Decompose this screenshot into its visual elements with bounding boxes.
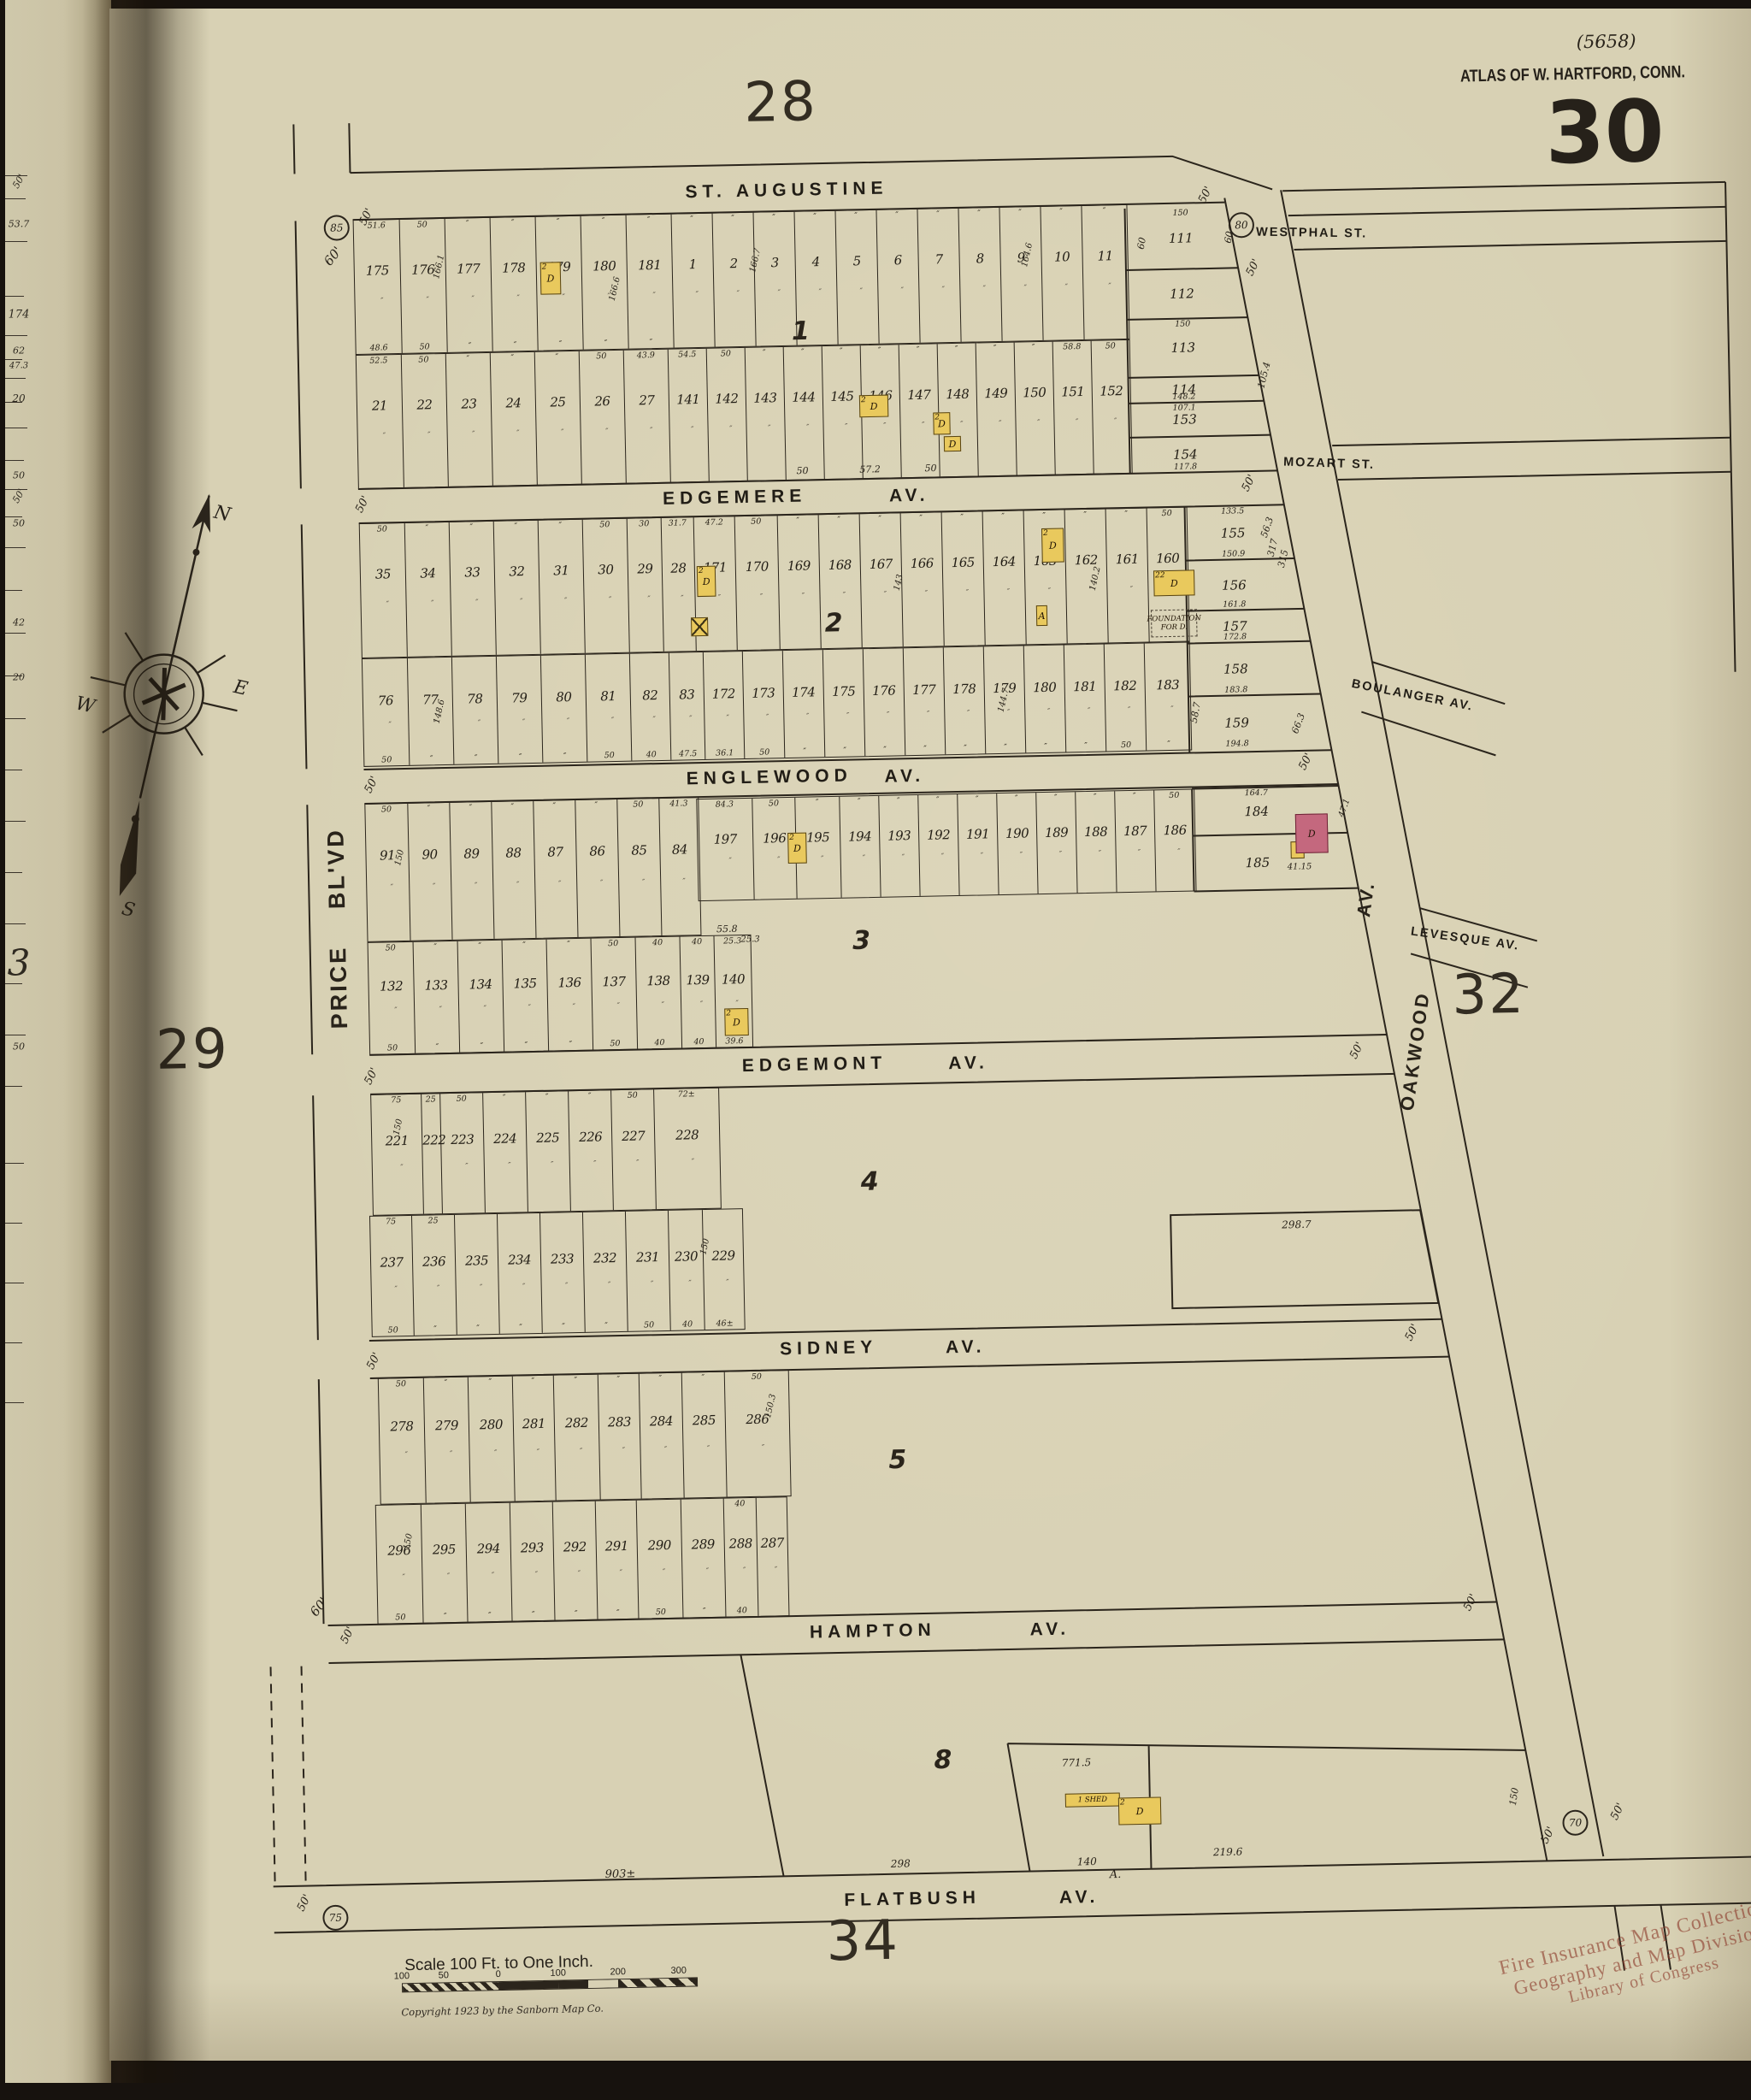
- lot-parcel: 193″″: [878, 795, 919, 897]
- lot-parcel: 78″″: [451, 657, 498, 764]
- building-storey-count: 2: [699, 567, 704, 575]
- lot-dimension: ″: [549, 1040, 593, 1050]
- map-annotation: 771.5: [1062, 1756, 1092, 1769]
- map-annotation: 50': [1244, 257, 1263, 279]
- lot-dimension: ″: [494, 522, 538, 532]
- lot-parcel: 79″″: [496, 656, 542, 764]
- lot-dimension: ″: [999, 208, 1040, 218]
- lot-dimension: ″: [905, 744, 945, 754]
- ditto-mark: ″: [651, 1280, 654, 1289]
- lot-dimension: ″: [627, 215, 671, 226]
- lot-parcel: 88″″: [491, 801, 535, 939]
- lot-number: 90: [409, 846, 450, 863]
- ditto-mark: ″: [400, 1164, 404, 1172]
- block-number: 5: [888, 1445, 907, 1475]
- ditto-mark: ″: [1047, 707, 1051, 716]
- lot-dimension: 40: [632, 750, 670, 760]
- lot-parcel: 294″″: [465, 1503, 512, 1622]
- lot-dimension: 50: [365, 805, 407, 815]
- building-storey-count: 2: [789, 834, 794, 842]
- ditto-mark: ″: [450, 1450, 453, 1459]
- lot-parcel: 112: [1126, 268, 1238, 320]
- lot-number: 151: [1054, 383, 1092, 399]
- lot-dimension: ″: [483, 1093, 525, 1103]
- map-annotation: 50': [353, 494, 372, 516]
- lot-dimension: 40: [681, 937, 714, 947]
- lot-dimension: 50: [378, 1613, 422, 1623]
- lot-dimension: 54.5: [669, 350, 706, 360]
- ditto-mark: ″: [593, 1160, 597, 1169]
- lot-number: 113: [1170, 339, 1195, 356]
- map-annotation: 55.8: [716, 923, 738, 935]
- lot-number: 296: [377, 1543, 422, 1559]
- lot-dimension: ″: [543, 1322, 585, 1332]
- building-storey-count: 2: [1120, 1798, 1125, 1807]
- lot-number: 294: [467, 1541, 510, 1557]
- scale-tick-label: 100: [394, 1971, 410, 1981]
- lot-parcel: 149″″: [976, 343, 1017, 476]
- lot-dimension: 50: [402, 342, 446, 352]
- lot-dimension: 50: [364, 755, 409, 765]
- lot-parcel: 8″″: [958, 208, 1001, 342]
- lot-number: 26: [581, 392, 624, 409]
- lot-parcel: 18650″: [1153, 789, 1195, 891]
- lot-number: 132: [368, 977, 413, 994]
- street-suffix: AV.: [948, 1053, 988, 1074]
- lot-number: 160: [1148, 550, 1188, 566]
- lot-dimension: 50: [1092, 341, 1129, 351]
- map-annotation: 60: [1135, 236, 1148, 250]
- street-name: ENGLEWOOD: [687, 765, 852, 789]
- foundation-label: FOR D.: [1161, 623, 1188, 633]
- lot-number: 176: [864, 682, 904, 699]
- ditto-mark: ″: [516, 429, 520, 438]
- ditto-mark: ″: [726, 1279, 729, 1288]
- lot-dimension: ″: [918, 795, 957, 805]
- street-suffix: AV.: [889, 486, 929, 507]
- lot-dimension: 50: [745, 747, 784, 758]
- lot-row: 19784.3″19650″195″″194″″193″″192″″191″″1…: [696, 788, 1196, 901]
- circled-reference: 70: [1562, 1809, 1589, 1836]
- street-name: MOZART ST.: [1283, 455, 1375, 471]
- ditto-mark: ″: [564, 598, 568, 606]
- map-annotation: 50': [1539, 1825, 1558, 1846]
- map-annotation: 298: [891, 1857, 911, 1869]
- ditto-mark: ″: [846, 711, 850, 720]
- ditto-mark: ″: [642, 878, 646, 887]
- lot-dimension: 50: [735, 516, 777, 527]
- lot-dimension: 84.3: [697, 799, 752, 810]
- ditto-mark: ″: [883, 422, 887, 430]
- lot-dimension: 50: [628, 1320, 670, 1330]
- map-annotation: 50: [796, 465, 808, 476]
- lot-parcel: 24″″: [490, 352, 537, 486]
- ditto-mark: ″: [433, 882, 436, 891]
- lot-parcel: 113150: [1127, 317, 1239, 378]
- lot-number: 181: [1065, 679, 1105, 695]
- lot-number: 183: [1146, 677, 1190, 693]
- lot-number: 175: [355, 262, 400, 279]
- scale-bar-segment: [558, 1979, 618, 1988]
- lot-number: 34: [406, 565, 450, 581]
- lot-dimension: 150: [1127, 318, 1238, 330]
- lot-parcel: 1″″: [671, 214, 715, 348]
- lot-dimension: 172.8: [1187, 631, 1282, 642]
- lot-parcel: 169″″: [777, 515, 821, 649]
- ditto-mark: ″: [941, 853, 945, 862]
- lot-number: 172: [705, 686, 743, 702]
- lot-dimension: ″: [526, 1092, 568, 1102]
- lot-dimension: ″: [983, 511, 1023, 522]
- lot-parcel: 17551.648.6″: [354, 220, 402, 354]
- lot-dimension: 50: [725, 1371, 788, 1382]
- lot-number: 33: [451, 564, 494, 581]
- building-storey-count: 2: [1043, 529, 1048, 538]
- lot-number: 228: [655, 1126, 719, 1143]
- lot-dimension: 50: [580, 351, 623, 362]
- lot-dimension: 50: [440, 1094, 482, 1104]
- building-type-label: D: [1170, 577, 1178, 588]
- scale-bar-segment: [618, 1978, 697, 1987]
- lot-parcel: 9″″: [999, 207, 1042, 341]
- lot-number: 23: [447, 395, 491, 411]
- ditto-mark: ″: [652, 716, 656, 724]
- building-footprint: [691, 617, 708, 636]
- lot-row: 17551.648.6″1765050″177″″″178″″″179″″″18…: [353, 204, 1130, 355]
- lot-number: 1: [673, 257, 713, 273]
- lot-dimension: 50: [592, 939, 635, 949]
- ditto-mark: ″: [901, 287, 905, 296]
- lot-dimension: ″: [469, 1377, 512, 1388]
- lot-number: 174: [784, 684, 823, 700]
- lot-number: 139: [681, 971, 714, 988]
- ditto-mark: ″: [1048, 587, 1052, 596]
- lot-dimension: ″: [785, 746, 824, 757]
- lot-number: 88: [492, 845, 534, 861]
- map-annotation: 60': [321, 244, 345, 268]
- lot-number: 4: [796, 254, 836, 270]
- building-footprint: D2: [697, 566, 716, 597]
- scale-tick-label: 100: [550, 1967, 566, 1978]
- lot-number: 234: [498, 1252, 540, 1268]
- map-annotation: 50': [295, 1892, 314, 1914]
- lot-parcel: 291″″: [595, 1501, 639, 1619]
- lot-parcel: 29050″: [636, 1500, 683, 1619]
- lot-dimension: ″: [860, 514, 900, 524]
- lot-dimension: 31.7: [662, 518, 693, 528]
- ditto-mark: ″: [520, 599, 523, 607]
- lot-dimension: 50: [402, 355, 445, 365]
- lot-dimension: ″: [454, 753, 498, 764]
- lot-number: 141: [669, 391, 707, 407]
- street-suffix: AV.: [884, 766, 924, 787]
- lot-parcel: 233″″: [539, 1212, 585, 1333]
- map-annotation: 50': [1347, 1040, 1366, 1061]
- lot-number: 137: [592, 973, 635, 989]
- lot-parcel: 3050″: [582, 519, 629, 653]
- lot-dimension: 46±: [705, 1318, 744, 1329]
- lot-dimension: ″: [543, 752, 587, 762]
- ditto-mark: ″: [1128, 705, 1131, 714]
- lot-dimension: ″: [491, 353, 534, 363]
- lot-dimension: ″: [917, 209, 958, 220]
- building-type-label: D: [948, 438, 956, 449]
- lot-parcel: 287″: [756, 1497, 789, 1616]
- lot-dimension: ″: [457, 1324, 499, 1334]
- lot-parcel: 2930″: [627, 518, 663, 652]
- lot-parcel: 18250″: [1104, 644, 1146, 752]
- lot-dimension: ″: [500, 1323, 542, 1333]
- lot-parcel: 177″″″: [445, 218, 492, 352]
- lot-number: 180: [582, 258, 627, 274]
- lot-dimension: 50: [379, 1379, 423, 1389]
- lot-parcel: 143″″: [745, 347, 786, 481]
- lot-parcel: 6″″: [875, 209, 919, 344]
- lot-parcel: 281″″: [512, 1376, 556, 1501]
- lot-number: 281: [514, 1415, 554, 1431]
- lot-number: 225: [527, 1130, 569, 1146]
- lot-parcel: 175″″: [822, 649, 864, 757]
- lot-dimension: ″: [861, 345, 899, 356]
- lot-number: 10: [1041, 249, 1082, 265]
- map-annotation: 50': [1608, 1801, 1627, 1822]
- map-annotation: 50': [364, 1350, 383, 1371]
- lot-dimension: ″: [946, 743, 985, 753]
- lot-parcel: 2743.9″: [623, 350, 670, 483]
- lot-dimension: ″: [491, 218, 535, 228]
- ditto-mark: ″: [1065, 284, 1069, 292]
- lot-parcel: 5″″: [834, 210, 878, 345]
- building-type-label: 1 SHED: [1078, 1796, 1108, 1805]
- lot-dimension: ″: [408, 804, 449, 814]
- lot-number: 8: [959, 251, 999, 267]
- lot-dimension: ″: [784, 347, 822, 357]
- ditto-mark: ″: [578, 1570, 581, 1578]
- lot-dimension: ″: [754, 213, 794, 223]
- lot-parcel: 180″″: [1023, 645, 1065, 752]
- lot-number: 289: [682, 1537, 724, 1553]
- ditto-mark: ″: [692, 1158, 695, 1166]
- lot-number: 185: [1245, 854, 1270, 870]
- lot-parcel: 232″″: [582, 1212, 628, 1332]
- ditto-mark: ″: [484, 1006, 487, 1014]
- lot-dimension: ″: [899, 345, 937, 355]
- map-annotation: 903±: [604, 1867, 635, 1881]
- lot-number: 236: [413, 1254, 455, 1270]
- lot-number: 83: [670, 687, 704, 703]
- lot-number: 135: [503, 975, 546, 991]
- ditto-mark: ″: [516, 881, 520, 889]
- ditto-mark: ″: [636, 1159, 640, 1168]
- lot-dimension: ″: [713, 214, 753, 224]
- lot-parcel: 284″″: [639, 1373, 684, 1499]
- lot-parcel: 17050″: [734, 516, 780, 650]
- lot-number: 152: [1093, 382, 1130, 398]
- ditto-mark: ″: [662, 1001, 665, 1010]
- lot-dimension: 39.6: [716, 1036, 752, 1047]
- ditto-mark: ″: [806, 712, 810, 721]
- lot-dimension: 47.2: [694, 517, 734, 528]
- lot-number: 76: [363, 693, 408, 709]
- lot-parcel: 11″″: [1081, 205, 1129, 339]
- lot-parcel: 148″″: [937, 343, 978, 476]
- lot-number: 189: [1037, 824, 1076, 841]
- lot-parcel: 154117.8: [1129, 435, 1241, 474]
- ditto-mark: ″: [775, 1566, 778, 1574]
- lot-row: 9150″90″″89″″88″″87″″86″″8550″8441.3″: [364, 797, 701, 942]
- building-type-label: D: [793, 842, 801, 853]
- lot-number: 85: [618, 842, 659, 858]
- lot-parcel: 114148.2: [1128, 375, 1240, 404]
- lot-number: 81: [587, 688, 630, 705]
- lot-dimension: ″: [575, 800, 616, 811]
- block-number: 3: [852, 926, 871, 956]
- lot-dimension: ″: [598, 1375, 639, 1385]
- map-annotation: 50': [1240, 473, 1259, 494]
- ditto-mark: ″: [650, 427, 653, 435]
- building-footprint: 1 SHED: [1065, 1792, 1120, 1807]
- lot-dimension: ″: [1036, 793, 1075, 803]
- lot-dimension: ″: [423, 1612, 467, 1622]
- lot-dimension: 25: [422, 1094, 439, 1104]
- lot-dimension: ″: [825, 746, 864, 756]
- ditto-mark: ″: [718, 594, 722, 603]
- lot-number: 287: [758, 1535, 787, 1551]
- lot-number: 133: [414, 976, 457, 993]
- map-annotation: AV.: [1353, 880, 1379, 918]
- lot-number: 25: [536, 393, 580, 410]
- lot-parcel: 10″″: [1040, 206, 1083, 340]
- lot-number: 153: [1172, 411, 1197, 428]
- lot-parcel: 15158.8″: [1052, 341, 1094, 475]
- lot-dimension: ″: [468, 1611, 511, 1621]
- lot-parcel: 181″″: [1064, 645, 1105, 752]
- map-annotation: A.: [1110, 1868, 1122, 1881]
- ditto-mark: ″: [777, 857, 781, 865]
- lot-dimension: ″: [498, 752, 542, 763]
- lot-dimension: ″: [503, 941, 546, 951]
- map-annotation: 50': [1403, 1322, 1422, 1343]
- lot-parcel: 1325050″: [368, 942, 416, 1054]
- ditto-mark: ″: [573, 1003, 576, 1012]
- lot-parcel: 2152.5″: [357, 355, 404, 488]
- adjacent-sheet-number: 28: [743, 70, 817, 135]
- lot-dimension: 183.8: [1188, 684, 1284, 695]
- lot-row: 1325050″133″″″134″″″135″″″136″″″1375050″…: [368, 935, 754, 1055]
- ditto-mark: ″: [1076, 418, 1079, 427]
- ditto-mark: ″: [405, 1451, 409, 1460]
- lot-dimension: ″: [598, 1608, 638, 1619]
- map-annotation: 50: [924, 463, 936, 474]
- block-number: 4: [861, 1166, 880, 1196]
- lot-parcel: 25″″: [534, 351, 581, 485]
- lot-dimension: ″: [1082, 206, 1126, 216]
- map-annotation: OAKWOOD: [1396, 990, 1435, 1112]
- lot-parcel: 147″″: [899, 344, 940, 477]
- street-name: HAMPTON: [810, 1620, 936, 1643]
- lot-number: 79: [498, 690, 541, 706]
- lot-parcel: 7″″: [917, 209, 960, 343]
- lot-parcel: 165″″: [941, 511, 985, 646]
- lot-number: 31: [539, 563, 583, 579]
- lot-number: 112: [1170, 286, 1194, 302]
- lot-number: 148: [939, 386, 976, 402]
- lot-dimension: ″: [997, 793, 1035, 804]
- lot-number: 278: [380, 1418, 424, 1434]
- lot-parcel: 3″″: [753, 212, 797, 346]
- building-type-label: D: [1136, 1805, 1144, 1816]
- lot-parcel: 162″″: [1064, 509, 1108, 643]
- ditto-mark: ″: [558, 880, 562, 888]
- lot-dimension: ″: [539, 521, 582, 531]
- ditto-mark: ″: [567, 717, 570, 726]
- lot-number: 237: [371, 1254, 412, 1271]
- ditto-mark: ″: [605, 428, 609, 436]
- building-footprint: D: [944, 436, 961, 451]
- lot-number: 226: [569, 1129, 611, 1145]
- lot-number: 170: [736, 558, 778, 575]
- lot-number: 230: [669, 1248, 703, 1265]
- lot-dimension: 50: [639, 1607, 682, 1618]
- lot-number: 29: [628, 561, 662, 577]
- ditto-mark: ″: [475, 599, 479, 608]
- lot-number: 156: [1222, 577, 1247, 593]
- lot-number: 149: [977, 385, 1015, 401]
- lot-parcel: 174″″: [782, 650, 824, 758]
- lot-number: 197: [698, 831, 752, 847]
- ditto-mark: ″: [762, 1443, 765, 1452]
- ditto-mark: ″: [480, 1283, 483, 1292]
- lot-parcel: 28650″: [724, 1371, 791, 1496]
- lot-parcel: 23625″″: [411, 1215, 457, 1336]
- ditto-mark: ″: [394, 1285, 398, 1294]
- lot-parcel: 14154.5″: [668, 349, 709, 482]
- lot-parcel: 279″″: [423, 1377, 470, 1503]
- lot-parcel: 282″″: [553, 1375, 600, 1501]
- lot-parcel: 8347.5″: [669, 652, 705, 760]
- ditto-mark: ″: [472, 430, 475, 439]
- lot-number: 87: [534, 844, 575, 860]
- lot-number: 164: [984, 553, 1024, 569]
- street-suffix: AV.: [946, 1336, 986, 1358]
- lot-dimension: ″: [840, 797, 878, 807]
- ditto-mark: ″: [565, 1282, 569, 1290]
- lot-number: 169: [779, 557, 819, 574]
- ditto-mark: ″: [1007, 708, 1011, 717]
- lot-number: 140: [715, 971, 751, 988]
- lot-parcel: 9150″: [365, 804, 410, 941]
- lot-number: 186: [1155, 822, 1194, 838]
- ditto-mark: ″: [981, 852, 984, 861]
- map-annotation: PRICE: [325, 946, 353, 1029]
- lot-number: 279: [425, 1417, 469, 1433]
- lot-dimension: ″: [795, 798, 839, 808]
- lot-parcel: 293″″: [510, 1502, 555, 1621]
- lot-number: 282: [555, 1414, 598, 1430]
- circled-reference: 85: [323, 215, 350, 241]
- ditto-mark: ″: [966, 589, 970, 598]
- lot-dimension: ″: [538, 339, 582, 350]
- street-suffix: AV.: [1029, 1619, 1070, 1641]
- ditto-mark: ″: [447, 1572, 451, 1581]
- lot-number: 82: [631, 687, 669, 704]
- lot-dimension: ″: [535, 352, 579, 363]
- building-footprint: D2: [859, 395, 889, 418]
- lot-number: 285: [683, 1412, 725, 1428]
- ditto-mark: ″: [427, 297, 430, 305]
- lot-dimension: ″: [958, 209, 999, 219]
- ditto-mark: ″: [726, 714, 729, 723]
